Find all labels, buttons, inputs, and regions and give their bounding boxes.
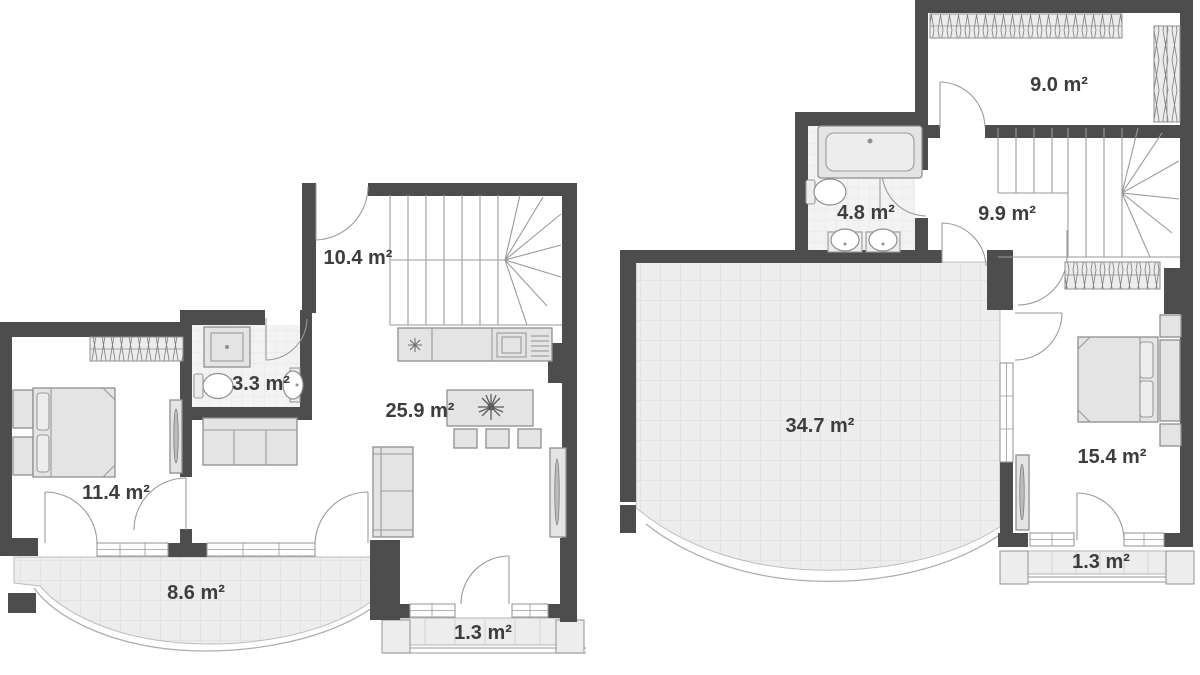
headboard-icon <box>1160 340 1180 421</box>
window-icon <box>207 543 315 556</box>
chair-icon <box>454 429 477 448</box>
bed-icon <box>33 388 115 477</box>
floor-plan: 10.4 m² 3.3 m² 25.9 m² 11.4 m² 8.6 m² 1.… <box>0 0 1200 675</box>
first-floor-plan: 10.4 m² 3.3 m² 25.9 m² 11.4 m² 8.6 m² 1.… <box>0 183 586 653</box>
bedroom-door-icon <box>1018 230 1067 305</box>
pillar-icon <box>1166 551 1194 584</box>
wardrobes <box>930 14 1180 289</box>
window-icon <box>1000 363 1013 462</box>
wardrobe-icon <box>1065 262 1160 289</box>
bedroom-door-icon <box>1015 313 1062 360</box>
bedroom-furniture <box>13 337 183 477</box>
window-icon <box>1124 533 1164 546</box>
kitchen-counter-icon <box>398 328 552 361</box>
washbasin-icon <box>866 229 900 252</box>
pillar-icon <box>556 620 584 653</box>
wardrobe-icon <box>90 337 183 361</box>
window-icon <box>1030 533 1074 546</box>
balcony-door-icon <box>1077 493 1124 540</box>
room-label-balcony: 8.6 m² <box>167 582 225 604</box>
second-floor-plan: 9.0 m² 4.8 m² 9.9 m² 34.7 m² 15.4 m² 1.3… <box>620 0 1194 584</box>
hob-icon <box>408 338 422 352</box>
washbasin-icon <box>828 229 862 252</box>
window-icon <box>512 604 548 617</box>
room-label-living: 25.9 m² <box>386 400 455 422</box>
chair-icon <box>518 429 541 448</box>
bed-icon <box>1078 337 1158 422</box>
nightstand-icon <box>1160 424 1181 446</box>
staircase-icon <box>390 195 562 325</box>
chair-icon <box>486 429 509 448</box>
room-label-bedroom: 11.4 m² <box>82 482 150 504</box>
staircase-icon <box>998 128 1180 257</box>
wardrobe-icon <box>930 14 1122 38</box>
room-label-hall: 9.9 m² <box>978 203 1036 225</box>
window-icon <box>410 604 455 617</box>
tv-icon <box>170 400 182 473</box>
room-label-bathroom: 4.8 m² <box>837 202 895 224</box>
tv-icon <box>550 448 566 537</box>
nightstand-icon <box>13 437 33 475</box>
room-label-loggia: 1.3 m² <box>454 622 512 644</box>
wardrobe-icon <box>1154 26 1180 122</box>
nightstand-icon <box>1160 315 1181 337</box>
balcony-door-icon <box>315 492 368 545</box>
bathtub-icon <box>818 126 922 178</box>
room-label-balcony: 1.3 m² <box>1072 551 1130 573</box>
pillar-icon <box>1000 551 1028 584</box>
entry-door-icon <box>316 184 368 240</box>
pillar-icon <box>382 620 410 653</box>
loggia-door-icon <box>461 556 509 604</box>
window-icon <box>97 543 168 556</box>
tv-icon <box>1016 455 1029 530</box>
shower-icon <box>204 327 250 367</box>
room-door-icon <box>940 82 985 128</box>
room-label-hall: 10.4 m² <box>324 247 393 269</box>
sofa-icon <box>203 418 297 465</box>
terrace-door-icon <box>942 223 986 266</box>
room-label-bathroom: 3.3 m² <box>232 373 290 395</box>
room-label-room: 9.0 m² <box>1030 74 1088 96</box>
toilet-icon <box>194 374 233 399</box>
room-label-terrace: 34.7 m² <box>786 415 855 437</box>
nightstand-icon <box>13 390 33 428</box>
floor-plan-drawing: 10.4 m² 3.3 m² 25.9 m² 11.4 m² 8.6 m² 1.… <box>0 0 1200 675</box>
room-label-bedroom: 15.4 m² <box>1078 446 1147 468</box>
sofa-icon <box>373 447 413 537</box>
